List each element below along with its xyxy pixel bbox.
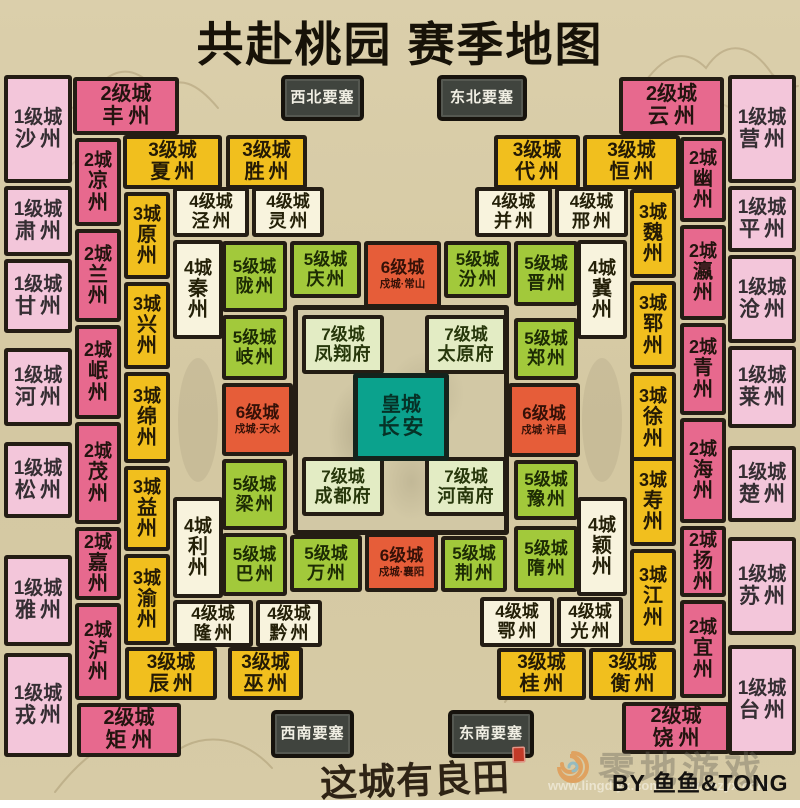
map-tile[interactable]: 6级城戍城·许昌 [508,383,580,457]
tile-level-label: 皇城 [381,394,421,416]
tile-level-label: 3级城 [607,140,656,161]
tile-level-label: 3城 [639,565,667,585]
tile-name-label: 利州 [188,537,208,580]
tile-name-label: 肃州 [15,220,65,244]
tile-level-label: 1级城 [738,365,787,386]
tile-level-label: 2城 [84,441,112,461]
tile-level-label: 5级城 [452,544,495,563]
map-tile[interactable]: 1级城肃州 [4,186,72,256]
tile-level-label: 5级城 [524,539,567,558]
tile-level-label: 2城 [689,241,717,261]
tile-name-label: 成都府 [315,486,372,506]
tile-level-label: 1级城 [738,462,787,483]
map-tile[interactable]: 2城岷州 [75,325,121,419]
map-tile[interactable]: 1级城河州 [4,348,72,426]
tile-name-label: 矩州 [106,729,158,753]
tile-level-label: 3城 [639,386,667,406]
tile-name-label: 西北要塞 [290,90,354,107]
map-tile[interactable]: 5级城庆州 [290,241,361,298]
tile-name-label: 隋州 [527,558,567,578]
tile-level-label: 3城 [639,202,667,222]
palace-tile[interactable]: 7级城河南府 [425,457,507,516]
tile-name-label: 丰州 [103,105,155,129]
tile-level-label: 3城 [639,470,667,490]
tile-name-label: 河南府 [438,486,495,506]
tile-name-label: 桂州 [520,673,568,695]
tile-name-label: 徐州 [643,407,663,450]
tile-level-label: 1级城 [14,107,63,128]
map-tile[interactable]: 3级城辰州 [125,647,217,700]
map-tile[interactable]: 2城泸州 [75,603,121,700]
tile-level-label: 2城 [84,620,112,640]
tile-level-label: 7级城 [321,467,364,486]
tile-name-label: 灵州 [269,211,311,231]
tile-level-label: 5级城 [524,470,567,489]
season-map: 1级城沙州1级城肃州1级城甘州1级城河州1级城松州1级城雅州1级城戎州2级城丰州… [0,0,800,800]
tile-name-label: 益州 [137,498,157,541]
fortress-tile[interactable]: 东北要塞 [437,75,527,121]
map-tile[interactable]: 1级城营州 [728,75,796,183]
credit-text: BY 鱼鱼&TONG [612,764,789,798]
map-tile[interactable]: 2城凉州 [75,138,121,226]
tile-name-label: 云州 [648,105,700,129]
map-tile[interactable]: 1级城沙州 [4,75,72,183]
tile-level-label: 5级城 [304,250,347,269]
tile-garrison-label: 戍城·襄阳 [379,567,425,579]
tile-level-label: 1级城 [14,578,63,599]
tile-level-label: 2城 [689,148,717,168]
tile-level-label: 7级城 [321,325,364,344]
tile-level-label: 2城 [689,530,717,550]
palace-tile[interactable]: 7级城成都府 [302,457,384,516]
tile-garrison-label: 戍城·常山 [380,279,426,291]
game-logo-text: 这城有良田 [319,757,510,805]
map-tile[interactable]: 3城江州 [630,549,676,645]
tile-level-label: 2级城 [646,83,697,105]
map-tile[interactable]: 5级城梁州 [222,459,287,530]
map-tile[interactable]: 6级城戍城·襄阳 [365,533,438,592]
tile-name-label: 胜州 [245,161,293,183]
map-tile[interactable]: 3级城恒州 [583,135,680,189]
map-tile[interactable]: 2城扬州 [680,526,726,597]
tile-name-label: 恒州 [610,161,658,183]
tile-level-label: 1级城 [14,274,63,295]
map-tile[interactable]: 1级城台州 [728,645,796,755]
tile-name-label: 梁州 [236,494,276,514]
map-tile[interactable]: 3城郓州 [630,281,676,369]
map-tile[interactable]: 2城瀛州 [680,225,726,320]
map-title: 共赴桃园 赛季地图 [0,6,800,75]
tile-name-label: 万州 [307,563,347,583]
tile-name-label: 雅州 [15,599,65,623]
fortress-tile[interactable]: 西北要塞 [281,75,364,121]
tile-name-label: 兴州 [137,315,157,358]
logo-seal-icon [512,746,526,762]
tile-level-label: 2城 [689,337,717,357]
map-tile[interactable]: 2城幽州 [680,137,726,222]
map-tile[interactable]: 2城宜州 [680,600,726,698]
tile-name-label: 辰州 [149,673,197,695]
map-tile[interactable]: 2城海州 [680,418,726,523]
tile-name-label: 汾州 [459,269,499,289]
map-tile[interactable]: 3城益州 [124,466,170,551]
tile-level-label: 3级城 [147,652,196,673]
tile-level-label: 3城 [639,293,667,313]
tile-name-label: 松州 [15,479,65,503]
map-tile[interactable]: 5级城荆州 [441,536,507,592]
map-tile[interactable]: 3级城桂州 [497,648,586,700]
tile-name-label: 沧州 [739,298,789,322]
season-map-poster: 共赴桃园 赛季地图 1级城沙州1级城肃州1级城甘州1级城河州1级城松州1级城雅州… [0,0,800,800]
tile-name-label: 东北要塞 [450,90,514,107]
tile-level-label: 3城 [133,386,161,406]
tile-level-label: 7级城 [444,467,487,486]
map-tile[interactable]: 4级城泾州 [173,187,249,237]
palace-tile[interactable]: 7级城太原府 [425,315,507,374]
tile-level-label: 6级城 [236,403,279,422]
tile-level-label: 6级城 [380,546,423,565]
tile-level-label: 4城 [184,258,212,278]
tile-name-label: 戎州 [15,704,65,728]
tile-level-label: 4级城 [267,604,310,623]
map-tile[interactable]: 3级城代州 [494,135,580,189]
tile-name-label: 河州 [15,386,65,410]
tile-level-label: 3城 [133,204,161,224]
map-tile[interactable]: 5级城郑州 [514,318,578,380]
map-tile[interactable]: 5级城陇州 [222,241,287,312]
map-tile[interactable]: 1级城苏州 [728,537,796,635]
map-tile[interactable]: 1级城平州 [728,186,796,252]
map-tile[interactable]: 6级城戍城·常山 [364,241,441,308]
tile-name-label: 绵州 [137,407,157,450]
tile-level-label: 1级城 [14,365,63,386]
map-tile[interactable]: 5级城汾州 [444,241,511,298]
map-tile[interactable]: 3城渝州 [124,554,170,645]
tile-name-label: 冀州 [592,279,612,322]
tile-name-label: 夏州 [151,161,199,183]
tile-level-label: 6级城 [522,404,565,423]
map-tile[interactable]: 2级城丰州 [73,77,179,135]
tile-name-label: 茂州 [88,462,108,505]
map-tile[interactable]: 3城原州 [124,192,170,279]
tile-name-label: 苏州 [739,585,789,609]
tile-name-label: 兰州 [88,265,108,308]
map-tile[interactable]: 1级城楚州 [728,446,796,522]
map-tile[interactable]: 3城寿州 [630,457,676,546]
tile-level-label: 1级城 [738,197,787,218]
tile-name-label: 东南要塞 [459,726,523,743]
game-logo: 这城有良田 [319,746,527,807]
tile-level-label: 4级城 [189,192,232,211]
tile-level-label: 3级城 [513,140,562,161]
tile-name-label: 平州 [739,218,789,242]
map-tile[interactable]: 3城徐州 [630,372,676,464]
tile-name-label: 黔州 [270,623,312,643]
tile-name-label: 泾州 [192,211,234,231]
tile-level-label: 5级城 [456,250,499,269]
tile-level-label: 4城 [588,258,616,278]
map-tile[interactable]: 2城兰州 [75,229,121,322]
tile-level-label: 2城 [689,439,717,459]
tile-level-label: 6级城 [381,258,424,277]
tile-level-label: 2城 [689,617,717,637]
tile-level-label: 1级城 [738,107,787,128]
tile-level-label: 4级城 [570,192,613,211]
tile-name-label: 宜州 [693,638,713,681]
tile-level-label: 4级城 [568,602,611,621]
tile-name-label: 衡州 [611,673,659,695]
map-tile[interactable]: 3城绵州 [124,372,170,463]
tile-name-label: 邢州 [572,211,614,231]
tile-name-label: 台州 [739,699,789,723]
tile-garrison-label: 戍城·天水 [235,424,281,436]
map-tile[interactable]: 4级城邢州 [555,187,628,237]
tile-level-label: 2城 [84,532,112,552]
tile-level-label: 5级城 [304,544,347,563]
map-tile[interactable]: 1级城戎州 [4,653,72,757]
map-tile[interactable]: 1级城甘州 [4,259,72,333]
map-tile[interactable]: 5级城晋州 [514,241,578,306]
tile-level-label: 3级城 [608,652,657,673]
tile-name-label: 岐州 [236,347,276,367]
map-tile[interactable]: 4级城鄂州 [480,597,554,647]
tile-level-label: 5级城 [233,545,276,564]
tile-level-label: 3级城 [241,652,290,673]
map-tile[interactable]: 3级城巫州 [228,647,303,700]
tile-name-label: 庆州 [307,269,347,289]
tile-name-label: 海州 [693,460,713,503]
tile-level-label: 3城 [133,477,161,497]
map-tile[interactable]: 4城秦州 [173,240,223,339]
map-tile[interactable]: 3级城衡州 [589,648,676,700]
tile-level-label: 5级城 [233,475,276,494]
tile-level-label: 3城 [133,568,161,588]
imperial-city-tile[interactable]: 皇城长安 [353,373,449,461]
map-tile[interactable]: 4级城并州 [475,187,552,237]
tile-name-label: 晋州 [527,273,567,293]
tile-name-label: 豫州 [527,489,567,509]
map-tile[interactable]: 4级城光州 [557,597,623,647]
map-tile[interactable]: 4级城隆州 [173,600,253,647]
tile-name-label: 原州 [137,225,157,268]
map-tile[interactable]: 5级城豫州 [514,460,578,520]
fortress-tile[interactable]: 西南要塞 [271,710,354,758]
tile-level-label: 7级城 [444,325,487,344]
tile-name-label: 嘉州 [88,553,108,596]
palace-tile[interactable]: 7级城凤翔府 [302,315,384,374]
map-tile[interactable]: 4城冀州 [577,240,627,339]
tile-name-label: 江州 [643,586,663,629]
map-tile[interactable]: 4级城灵州 [252,187,324,237]
tile-garrison-label: 戍城·许昌 [521,425,567,437]
tile-level-label: 5级城 [233,257,276,276]
tile-name-label: 泸州 [88,641,108,684]
tile-level-label: 4级城 [266,192,309,211]
tile-level-label: 1级城 [738,564,787,585]
tile-level-label: 3城 [133,294,161,314]
tile-name-label: 甘州 [15,295,65,319]
tile-level-label: 3级城 [148,140,197,161]
tile-name-label: 楚州 [739,483,789,507]
tile-level-label: 5级城 [524,254,567,273]
tile-level-label: 5级城 [524,329,567,348]
tile-level-label: 2级城 [650,705,701,727]
map-tile[interactable]: 3城兴州 [124,282,170,369]
map-tile[interactable]: 2城茂州 [75,422,121,524]
tile-level-label: 2城 [84,150,112,170]
tile-name-label: 凤翔府 [315,344,372,364]
tile-name-label: 青州 [693,358,713,401]
tile-name-label: 莱州 [739,386,789,410]
tile-name-label: 郑州 [527,348,567,368]
tile-level-label: 2级城 [100,83,151,105]
map-tile[interactable]: 6级城戍城·天水 [222,383,293,456]
tile-level-label: 2级城 [103,707,154,729]
map-tile[interactable]: 2级城矩州 [77,703,181,757]
tile-name-label: 瀛州 [693,262,713,305]
map-tile[interactable]: 2城嘉州 [75,527,121,600]
tile-level-label: 4级城 [495,602,538,621]
tile-name-label: 荆州 [455,563,495,583]
map-tile[interactable]: 4城利州 [173,497,223,598]
tile-name-label: 魏州 [643,223,663,266]
tile-name-label: 太原府 [438,344,495,364]
map-tile[interactable]: 2级城云州 [619,77,724,135]
tile-name-label: 颖州 [592,536,612,579]
map-tile[interactable]: 5级城巴州 [222,533,287,596]
tile-name-label: 光州 [571,621,613,641]
tile-level-label: 4城 [184,516,212,536]
tile-name-label: 郓州 [643,314,663,357]
tile-name-label: 渝州 [137,589,157,632]
tile-level-label: 3级城 [242,140,291,161]
map-tile[interactable]: 5级城万州 [290,535,362,592]
tile-name-label: 西南要塞 [280,726,344,743]
tile-name-label: 寿州 [643,491,663,534]
map-tile[interactable]: 5级城岐州 [222,315,287,380]
map-tile[interactable]: 3级城胜州 [226,135,307,189]
map-tile[interactable]: 5级城隋州 [514,526,578,592]
tile-name-label: 秦州 [188,279,208,322]
tile-name-label: 陇州 [236,276,276,296]
tile-level-label: 5级城 [233,328,276,347]
map-tile[interactable]: 1级城松州 [4,442,72,518]
map-tile[interactable]: 2城青州 [680,323,726,415]
tile-level-label: 3级城 [517,652,566,673]
tile-level-label: 1级城 [14,199,63,220]
tile-name-label: 凉州 [88,171,108,214]
tile-name-label: 长安 [379,416,427,440]
tile-level-label: 1级城 [738,678,787,699]
tile-name-label: 扬州 [693,551,713,594]
tile-name-label: 沙州 [15,128,65,152]
tile-level-label: 1级城 [14,683,63,704]
tile-level-label: 4级城 [191,604,234,623]
tile-level-label: 2城 [84,244,112,264]
map-tile[interactable]: 3级城夏州 [123,135,222,189]
map-tile[interactable]: 1级城莱州 [728,346,796,428]
tile-level-label: 1级城 [14,458,63,479]
map-tile[interactable]: 3城魏州 [630,189,676,278]
tile-level-label: 2城 [84,340,112,360]
tile-level-label: 4级城 [492,192,535,211]
map-tile[interactable]: 1级城沧州 [728,255,796,343]
tile-level-label: 1级城 [738,277,787,298]
tile-name-label: 巴州 [236,564,276,584]
tile-name-label: 幽州 [693,169,713,212]
tile-name-label: 并州 [494,211,536,231]
tile-name-label: 鄂州 [498,621,540,641]
tile-name-label: 巫州 [244,673,292,695]
map-tile[interactable]: 4城颖州 [577,497,627,596]
map-tile[interactable]: 1级城雅州 [4,555,72,646]
map-tile[interactable]: 4级城黔州 [256,600,322,647]
tile-name-label: 营州 [739,128,789,152]
tile-name-label: 隆州 [194,623,236,643]
tile-name-label: 代州 [515,161,563,183]
tile-name-label: 岷州 [88,361,108,404]
tile-level-label: 4城 [588,515,616,535]
